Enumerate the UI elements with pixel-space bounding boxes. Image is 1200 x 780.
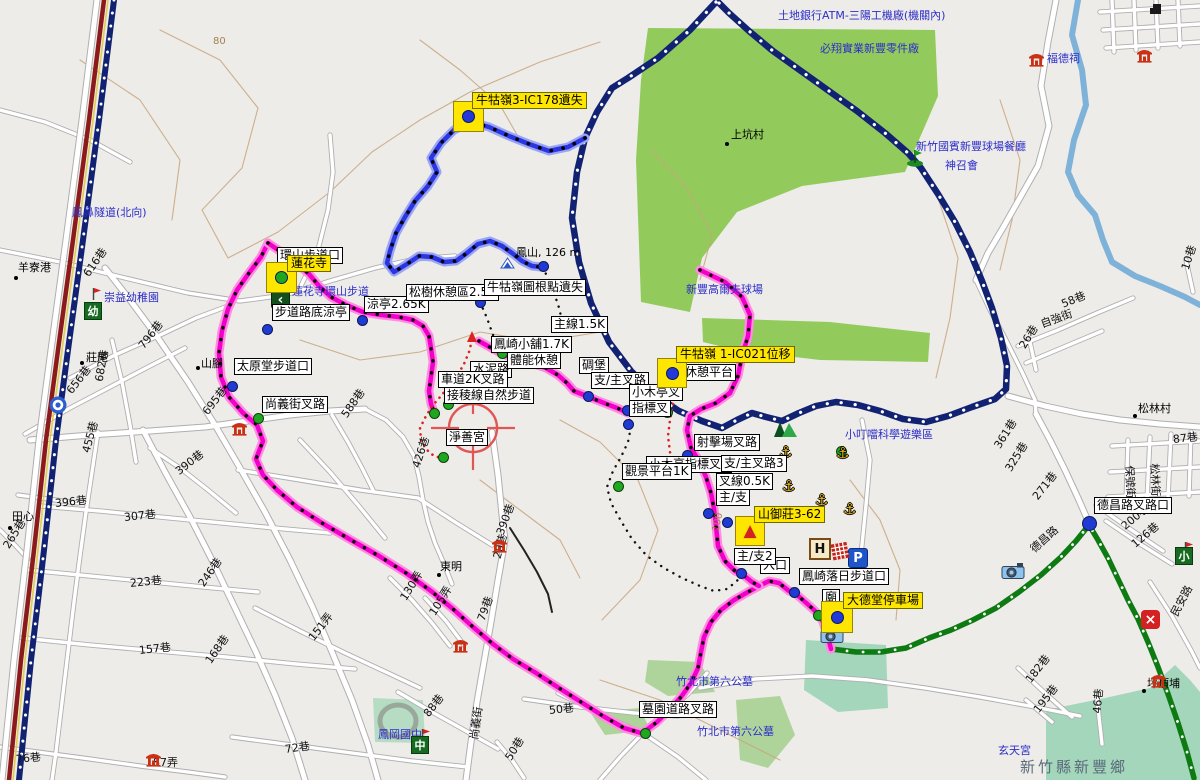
poi-label[interactable]: 休憩平台 (682, 364, 736, 381)
temple-icon[interactable] (491, 538, 508, 557)
tower-icon (1150, 0, 1164, 19)
highlighted-waypoint-label[interactable]: 牛牯嶺3-IC178遺失 (472, 92, 587, 109)
road-name-label: 105弄 (426, 583, 456, 618)
trail-dot-blue[interactable] (262, 324, 273, 335)
road-name-label: 588巷 (338, 386, 369, 421)
place-name-label: 必翔實業新豐零件廠 (820, 41, 919, 56)
school-icon[interactable]: 中 (411, 736, 429, 754)
poi-label[interactable]: 主線1.5K (551, 316, 608, 333)
place-name-label: 小叮噹科學遊樂區 (845, 427, 933, 442)
road-name-label: 396巷 (54, 493, 87, 511)
road-name-label: 246巷 (195, 555, 226, 590)
road-name-label: 656巷 (63, 363, 95, 397)
temple-icon[interactable] (145, 752, 162, 771)
trail-dot-green[interactable] (429, 408, 440, 419)
junction-dot-blue[interactable] (1082, 516, 1097, 531)
trail-dot-blue[interactable] (538, 261, 549, 272)
poi-label[interactable]: 接稜線自然步道 (444, 387, 534, 404)
highlighted-waypoint-label[interactable]: 大德堂停車場 (843, 592, 923, 609)
trail-dot-blue[interactable] (227, 381, 238, 392)
map-overlay: ⚓⚓⚓⚓⚓幼中小PH×‹▲環山步道口步道路底涼亭涼亭2.65K松樹休憩區2.5K… (0, 0, 1200, 780)
road-name-label: 72巷 (284, 739, 311, 757)
poi-label[interactable]: 指標叉 (629, 400, 671, 417)
village-dot (437, 573, 441, 577)
trail-dot-blue[interactable] (357, 315, 368, 326)
school-icon[interactable]: 小 (1175, 547, 1193, 565)
waypoint-dot-green (275, 271, 288, 284)
village-label: 上坑村 (731, 127, 764, 142)
road-name-label: 151弄 (305, 610, 337, 644)
road-name-label: 46巷 (1090, 688, 1107, 714)
golf-flag-icon[interactable] (906, 148, 924, 171)
highlighted-waypoint-label[interactable]: 牛牯嶺 1-IC021位移 (676, 346, 795, 363)
village-dot (725, 142, 729, 146)
temple-icon[interactable] (231, 421, 248, 440)
trail-dot-green[interactable] (640, 728, 651, 739)
waypoint-dot-blue (462, 110, 475, 123)
place-name-label: 新豐高爾夫球場 (686, 282, 763, 297)
poi-label[interactable]: 步道路底涼亭 (272, 304, 350, 321)
village-label: 東明 (440, 559, 462, 574)
mountain-icon (500, 254, 515, 273)
camera-icon[interactable] (1001, 562, 1026, 584)
map-canvas[interactable]: ⚓⚓⚓⚓⚓幼中小PH×‹▲環山步道口步道路底涼亭涼亭2.65K松樹休憩區2.5K… (0, 0, 1200, 780)
poi-label[interactable]: 主/支 (716, 489, 750, 506)
village-dot (14, 276, 18, 280)
road-name-label: 松林街 (1147, 463, 1164, 497)
poi-label[interactable]: 淨善宮 (446, 429, 488, 446)
district-boundary-label: 新竹縣新豐鄉 (1020, 760, 1128, 775)
road-name-label: 426巷 (409, 435, 433, 470)
trail-dot-blue[interactable] (722, 517, 733, 528)
road-name-label: 50巷 (548, 700, 574, 718)
road-name-label: 223巷 (129, 573, 162, 591)
place-name-label: 神召會 (945, 158, 978, 173)
road-name-label: 76巷 (15, 749, 41, 767)
poi-label[interactable]: 觀景平台1K (622, 463, 692, 480)
road-name-label: 695巷 (199, 384, 231, 418)
place-name-label: 福德祠 (1047, 51, 1080, 66)
place-name-label: 玄天宮 (998, 743, 1031, 758)
trail-dot-blue[interactable] (583, 391, 594, 402)
anchor-icon[interactable]: ⚓ (843, 500, 856, 518)
highlighted-waypoint-label[interactable]: 蓮花寺 (287, 255, 331, 272)
road-name-label: 民安路 (1167, 583, 1196, 619)
poi-label[interactable]: 車道2K叉路 (438, 371, 508, 388)
contour-elevation-label: 80 (213, 34, 226, 49)
poi-label[interactable]: 射擊場叉路 (694, 434, 760, 451)
place-name-label: 崇益幼稚園 (104, 290, 159, 305)
road-name-label: 自強街 (1038, 306, 1074, 331)
trail-dot-green[interactable] (438, 452, 449, 463)
road-name-label: 87巷 (1172, 429, 1198, 447)
poi-label[interactable]: 墓園道路叉路 (639, 701, 717, 718)
poi-label[interactable]: 太原堂步道口 (234, 358, 312, 375)
road-name-label: 265巷 (0, 516, 29, 551)
village-dot (1142, 689, 1146, 693)
road-name-label: 10巷 (1178, 243, 1200, 271)
poi-label[interactable]: 德昌路叉路口 (1094, 497, 1172, 514)
store-icon[interactable]: × (1141, 610, 1160, 629)
road-name-label: 88巷 (420, 691, 447, 720)
anchor-icon[interactable]: ⚓ (782, 477, 795, 495)
trail-dot-blue[interactable] (789, 587, 800, 598)
road-name-label: 德昌路 (1027, 523, 1062, 556)
hotel-icon[interactable]: H (809, 538, 831, 560)
trail-dot-green[interactable] (613, 481, 624, 492)
tunnel-icon[interactable] (48, 395, 68, 419)
place-name-label: 鳳鼻隧道(北向) (72, 205, 147, 220)
place-name-label: 竹北市第六公墓 (697, 724, 774, 739)
road-name-label: 390巷 (172, 447, 206, 479)
poi-label[interactable]: 鳳崎小舖1.7K (491, 336, 572, 353)
trail-dot-blue[interactable] (703, 508, 714, 519)
poi-label[interactable]: 尚義街叉路 (262, 396, 328, 413)
summit-triangles-icon[interactable] (772, 420, 800, 443)
road-name-label: 157巷 (138, 640, 171, 658)
road-name-label: 79巷 (474, 594, 497, 623)
highlighted-waypoint-label[interactable]: 山御莊3-62 (754, 506, 825, 523)
road-name-label: 130弄 (397, 568, 427, 603)
place-name-label: 竹北市第六公墓 (676, 674, 753, 689)
road-name-label: 26巷 (1016, 322, 1042, 351)
village-label: 山腳 (201, 356, 223, 371)
road-name-label: 455巷 (79, 420, 102, 455)
trail-dot-blue[interactable] (736, 568, 747, 579)
road-name-label: 保號街 (1122, 465, 1139, 499)
road-name-label: 尚義街 (467, 706, 486, 741)
temple-icon[interactable] (1150, 673, 1167, 692)
place-name-label: 新竹國賓新豐球場餐廳 (916, 139, 1026, 154)
poi-label[interactable]: 體能休憩 (507, 352, 561, 369)
road-name-label: 616巷 (80, 245, 111, 280)
waypoint-dot-blue (666, 367, 679, 380)
road-name-label: 168巷 (202, 632, 233, 667)
temple-icon[interactable] (1028, 52, 1045, 71)
market-checker-icon[interactable] (831, 542, 850, 565)
road-name-label: 195巷 (1030, 682, 1062, 716)
road-name-label: 307巷 (123, 507, 156, 525)
school-icon[interactable]: 幼 (84, 302, 102, 320)
village-dot (196, 366, 200, 370)
waypoint-dot-blue (831, 611, 844, 624)
temple-icon[interactable] (452, 638, 469, 657)
road-name-label: 271巷 (1029, 469, 1061, 503)
village-label: 松林村 (1138, 401, 1171, 416)
red-triangle-marker: ▲ (743, 523, 756, 540)
temple-icon[interactable] (1136, 48, 1153, 67)
poi-label[interactable]: 叉線0.5K (716, 473, 773, 490)
poi-label[interactable]: 支/主叉路3 (721, 455, 787, 472)
trail-dot-blue[interactable] (623, 419, 634, 430)
summit-label: 鳳山, 126 m (516, 245, 580, 260)
road-name-label: 796巷 (135, 318, 167, 352)
poi-label[interactable]: 主/支2 (734, 548, 776, 565)
anchor-icon[interactable]: ⚓ (836, 444, 849, 462)
road-name-label: 50巷 (502, 734, 528, 763)
poi-label[interactable]: 鳳崎落日步道口 (799, 568, 889, 585)
place-name-label: 蓮花寺環山步道 (292, 284, 369, 299)
poi-label[interactable]: 牛牯嶺圖根點遺失 (484, 279, 586, 296)
trail-dot-green[interactable] (253, 413, 264, 424)
village-label: 羊寮港 (18, 260, 51, 275)
place-name-label: 土地銀行ATM-三陽工機廠(機關內) (778, 8, 945, 23)
village-dot (1133, 414, 1137, 418)
